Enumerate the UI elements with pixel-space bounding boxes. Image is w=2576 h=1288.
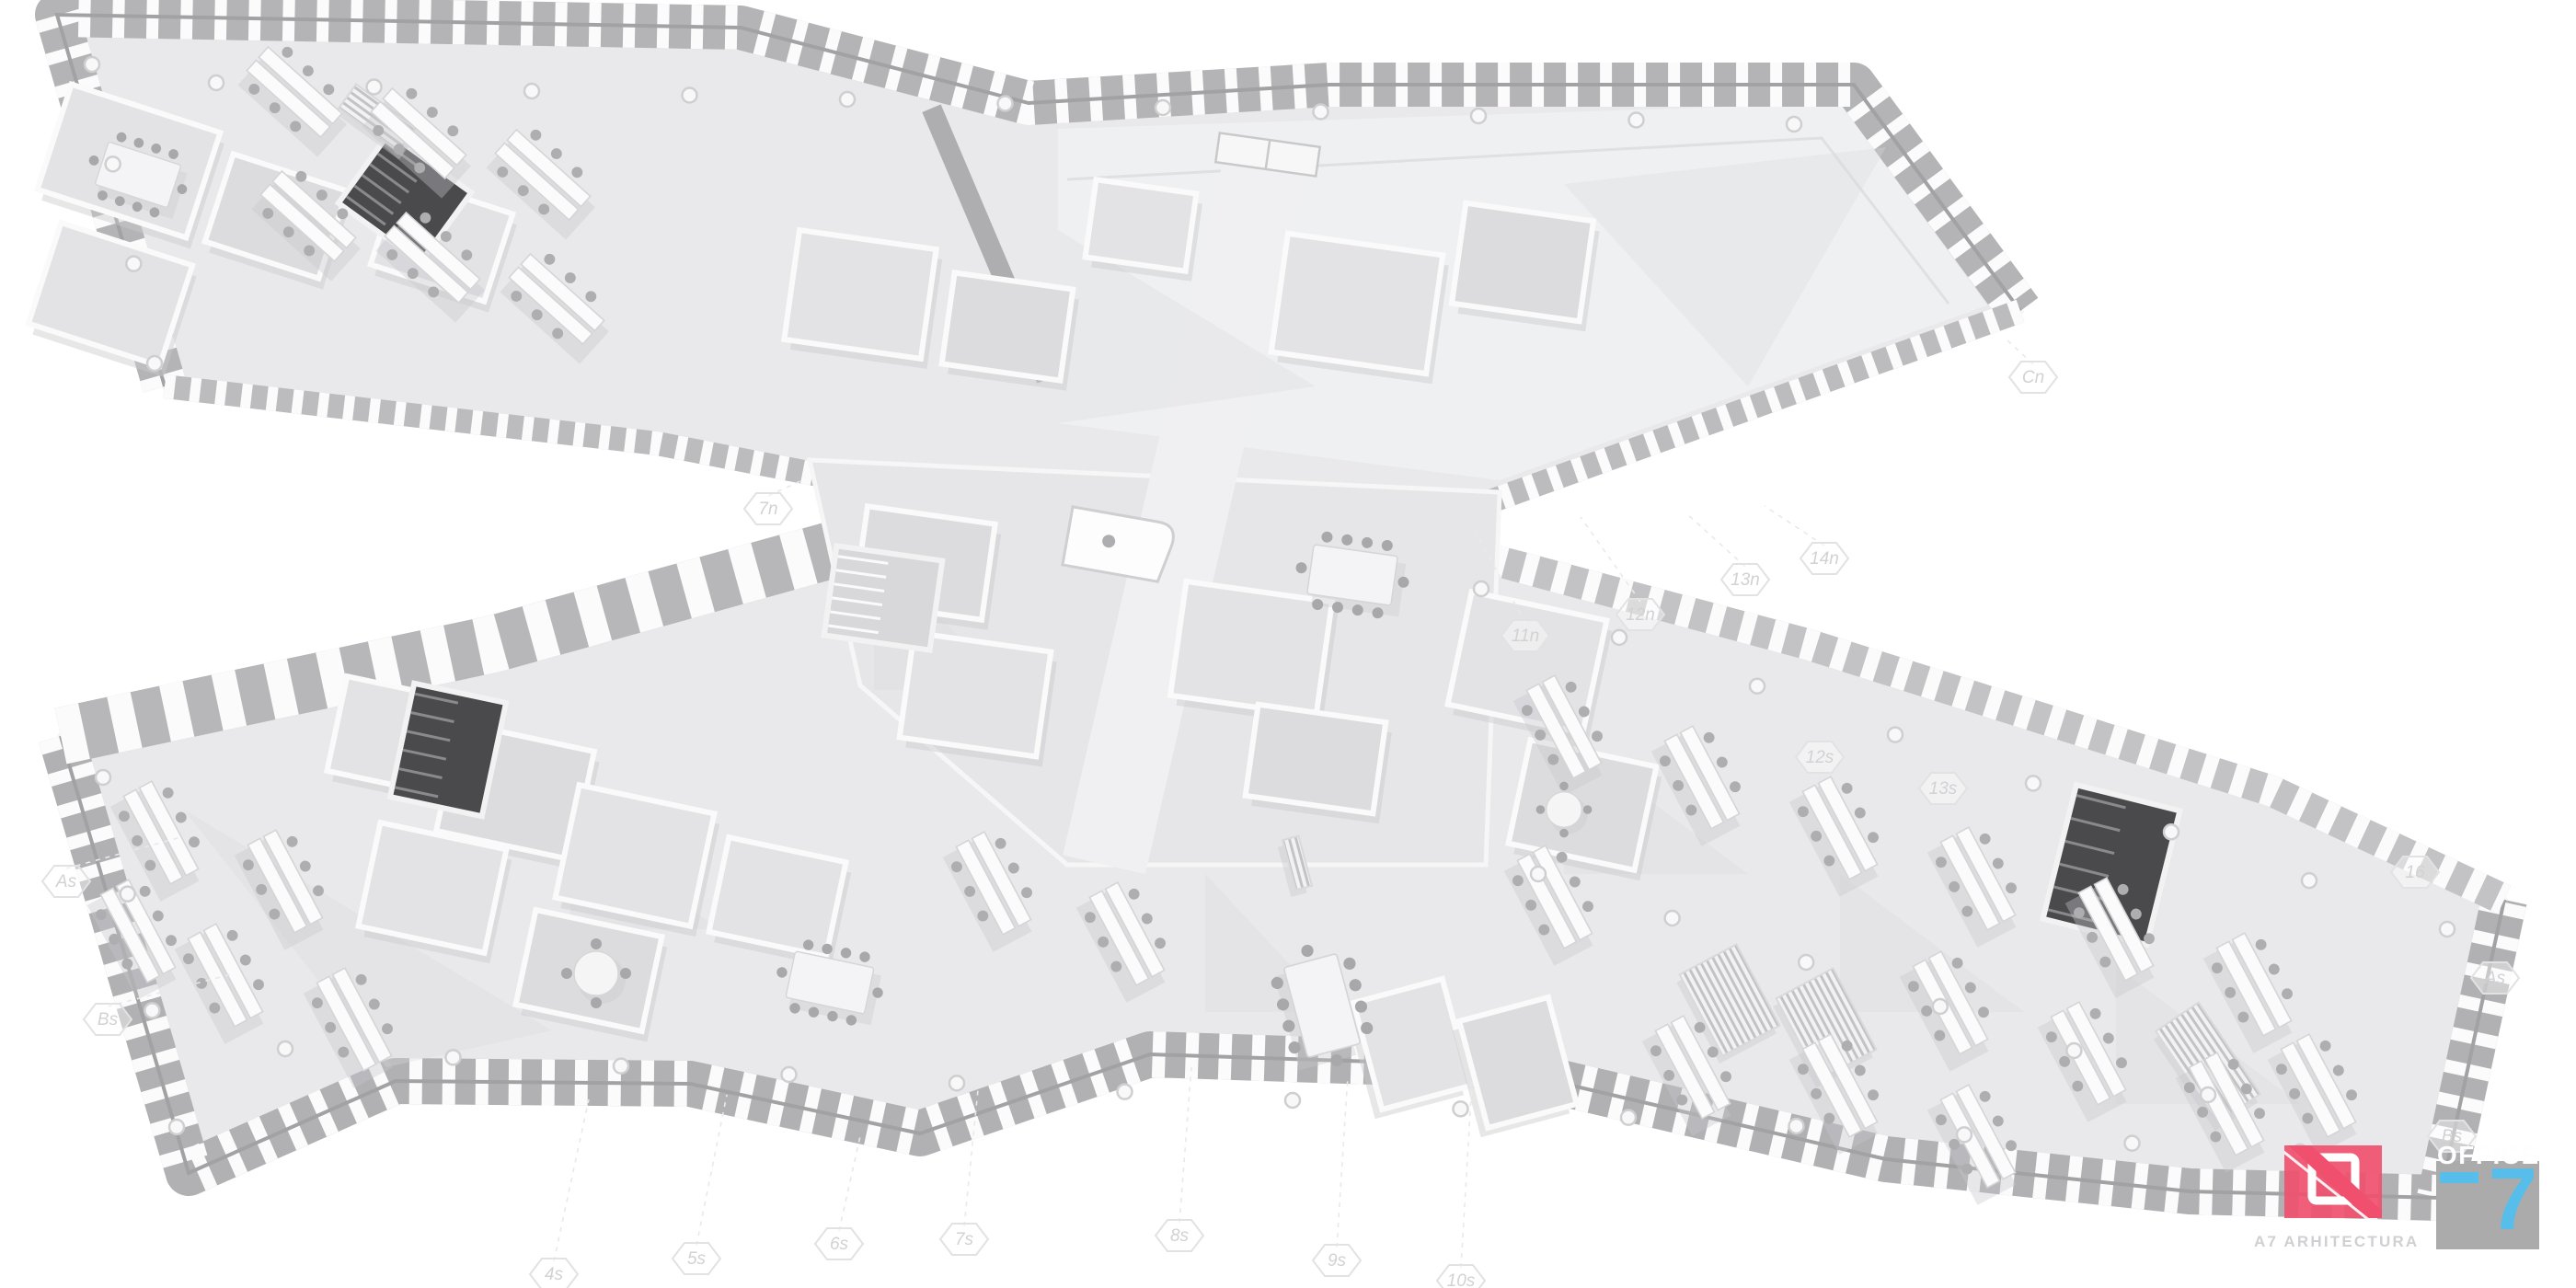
- structural-column: [2026, 776, 2041, 790]
- structural-column: [169, 1120, 184, 1134]
- structural-column: [1665, 911, 1680, 926]
- structural-column: [1454, 1101, 1468, 1116]
- structural-column: [524, 84, 539, 98]
- building-rendering: AsBs4s5s6s7s8s9s10s7n11n12n13n14n12s13sC…: [0, 0, 2576, 1288]
- grid-marker-label: 13s: [1929, 779, 1958, 799]
- structural-column: [147, 356, 162, 371]
- structural-column: [2125, 1136, 2140, 1151]
- grid-marker: 6s: [815, 1136, 863, 1259]
- grid-marker-label: 11n: [1512, 627, 1539, 646]
- a7-logo-glyph: [2284, 1145, 2382, 1218]
- structural-column: [1933, 999, 1948, 1014]
- grid-marker-label: 8s: [1170, 1226, 1190, 1246]
- structural-column: [278, 1041, 293, 1056]
- structural-column: [96, 770, 110, 785]
- room: [1084, 179, 1203, 281]
- grid-marker: 4s: [530, 1099, 589, 1288]
- structural-column: [1799, 955, 1813, 970]
- structural-column: [2201, 1087, 2215, 1102]
- grid-marker: 7n: [744, 480, 802, 524]
- grid-marker-label: As: [2484, 969, 2506, 988]
- project-logo-dash: [2440, 1172, 2478, 1183]
- structural-column: [1957, 1127, 1972, 1142]
- rendering-stage: AsBs4s5s6s7s8s9s10s7n11n12n13n14n12s13sC…: [0, 0, 2576, 1288]
- project-logo-numeral: 7: [2478, 1157, 2537, 1241]
- grid-marker-label: 12s: [1806, 748, 1834, 767]
- grid-marker-label: 16: [2405, 863, 2425, 882]
- grid-marker-label: 5s: [687, 1249, 707, 1269]
- structural-column: [144, 1003, 159, 1018]
- structural-column: [998, 97, 1013, 111]
- structural-column: [85, 57, 99, 72]
- architect-logo-text: A7 ARHITECTURA: [2254, 1233, 2438, 1251]
- grid-marker: 14n: [1765, 506, 1848, 574]
- structural-column: [782, 1067, 797, 1082]
- structural-column: [1621, 1110, 1636, 1125]
- grid-marker-label: 10s: [1447, 1271, 1476, 1288]
- grid-marker: Cn: [2006, 339, 2057, 393]
- architect-logo-mark: [2284, 1145, 2382, 1218]
- grid-marker-label: As: [55, 872, 77, 891]
- structural-column: [949, 1075, 964, 1090]
- structural-column: [1612, 630, 1627, 645]
- grid-marker-label: 7n: [758, 500, 777, 519]
- structural-column: [1531, 867, 1546, 881]
- structural-column: [121, 887, 135, 902]
- grid-marker-label: Cn: [2022, 368, 2044, 387]
- structural-column: [2066, 1043, 2081, 1058]
- grid-marker: 9s: [1313, 1076, 1361, 1276]
- room: [940, 272, 1080, 390]
- room: [783, 230, 944, 369]
- structural-column: [1888, 728, 1903, 742]
- grid-marker: 8s: [1156, 1067, 1203, 1251]
- grid-marker-label: 13n: [1731, 570, 1760, 590]
- structural-column: [1156, 100, 1170, 115]
- structural-column: [126, 257, 141, 271]
- structural-column: [367, 80, 382, 95]
- structural-column: [1285, 1093, 1300, 1108]
- grid-marker: 13n: [1685, 512, 1769, 595]
- grid-marker-label: 12n: [1626, 605, 1655, 625]
- structural-column: [1471, 109, 1486, 123]
- structural-column: [2302, 873, 2317, 888]
- structural-column: [1314, 105, 1328, 120]
- structural-column: [683, 88, 697, 103]
- grid-marker-label: 6s: [830, 1235, 849, 1254]
- grid-marker: 5s: [673, 1095, 727, 1274]
- structural-column: [1474, 581, 1489, 596]
- structural-column: [2164, 824, 2179, 839]
- stairwell: [821, 543, 945, 653]
- room: [1451, 203, 1601, 331]
- structural-column: [1789, 1119, 1804, 1133]
- room: [898, 633, 1058, 767]
- room: [1270, 234, 1450, 384]
- room: [1244, 705, 1393, 824]
- structural-column: [106, 156, 121, 171]
- structural-column: [1750, 679, 1765, 694]
- structural-column: [1118, 1085, 1133, 1099]
- structural-column: [2440, 922, 2455, 937]
- structural-column: [446, 1050, 461, 1064]
- grid-marker-label: Bs: [98, 1010, 119, 1029]
- grid-marker-label: 7s: [955, 1230, 974, 1249]
- structural-column: [1787, 117, 1801, 132]
- structural-column: [209, 75, 224, 90]
- grid-marker-label: 4s: [545, 1265, 564, 1284]
- grid-marker-label: 9s: [1328, 1251, 1347, 1271]
- structural-column: [840, 92, 855, 107]
- grid-marker-label: 14n: [1810, 549, 1839, 569]
- structural-column: [614, 1059, 628, 1074]
- structural-column: [1629, 113, 1644, 128]
